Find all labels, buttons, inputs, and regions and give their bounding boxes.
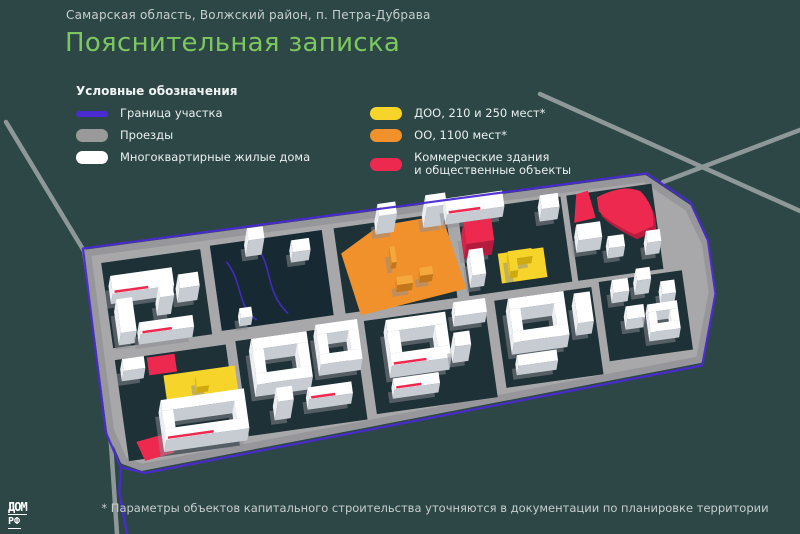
driveways-swatch [76,129,108,142]
legend-row-boundary: Граница участка [76,107,310,120]
footnote-text: * Параметры объектов капитального строит… [70,501,800,515]
legend-title: Условные обозначения [76,84,696,98]
legend-label-driveways: Проезды [120,129,173,142]
legend-label-apartments: Многоквартирные жилые дома [120,151,310,164]
dom-rf-logo: ДОМ РФ [8,501,27,529]
legend-left-column: Граница участка Проезды Многоквартирные … [76,107,310,164]
legend-row-commercial: Коммерческие здания и общественные объек… [370,151,571,177]
logo-text-dom: ДОМ [8,501,27,515]
logo-text-rf: РФ [8,516,21,529]
boundary-line-swatch [76,111,108,117]
legend-row-school: ОО, 1100 мест* [370,129,571,142]
legend-row-kindergarten: ДОО, 210 и 250 мест* [370,107,571,120]
legend-label-commercial: Коммерческие здания и общественные объек… [414,151,571,177]
legend-label-boundary: Граница участка [120,107,223,120]
legend-row-apartments: Многоквартирные жилые дома [76,151,310,164]
legend-row-driveways: Проезды [76,129,310,142]
slide: Самарская область, Волжский район, п. Пе… [0,0,800,534]
location-text: Самарская область, Волжский район, п. Пе… [66,8,431,22]
legend-right-column: ДОО, 210 и 250 мест* ОО, 1100 мест* Комм… [370,107,571,177]
kindergarten-swatch [370,107,402,120]
apartments-swatch [76,151,108,164]
legend-label-kindergarten: ДОО, 210 и 250 мест* [414,107,545,120]
legend-label-school: ОО, 1100 мест* [414,129,507,142]
site-plan-map [0,0,800,534]
school-swatch [370,129,402,142]
commercial-swatch [370,158,402,171]
page-title: Пояснительная записка [65,28,400,58]
legend: Условные обозначения Граница участка Про… [76,84,696,177]
